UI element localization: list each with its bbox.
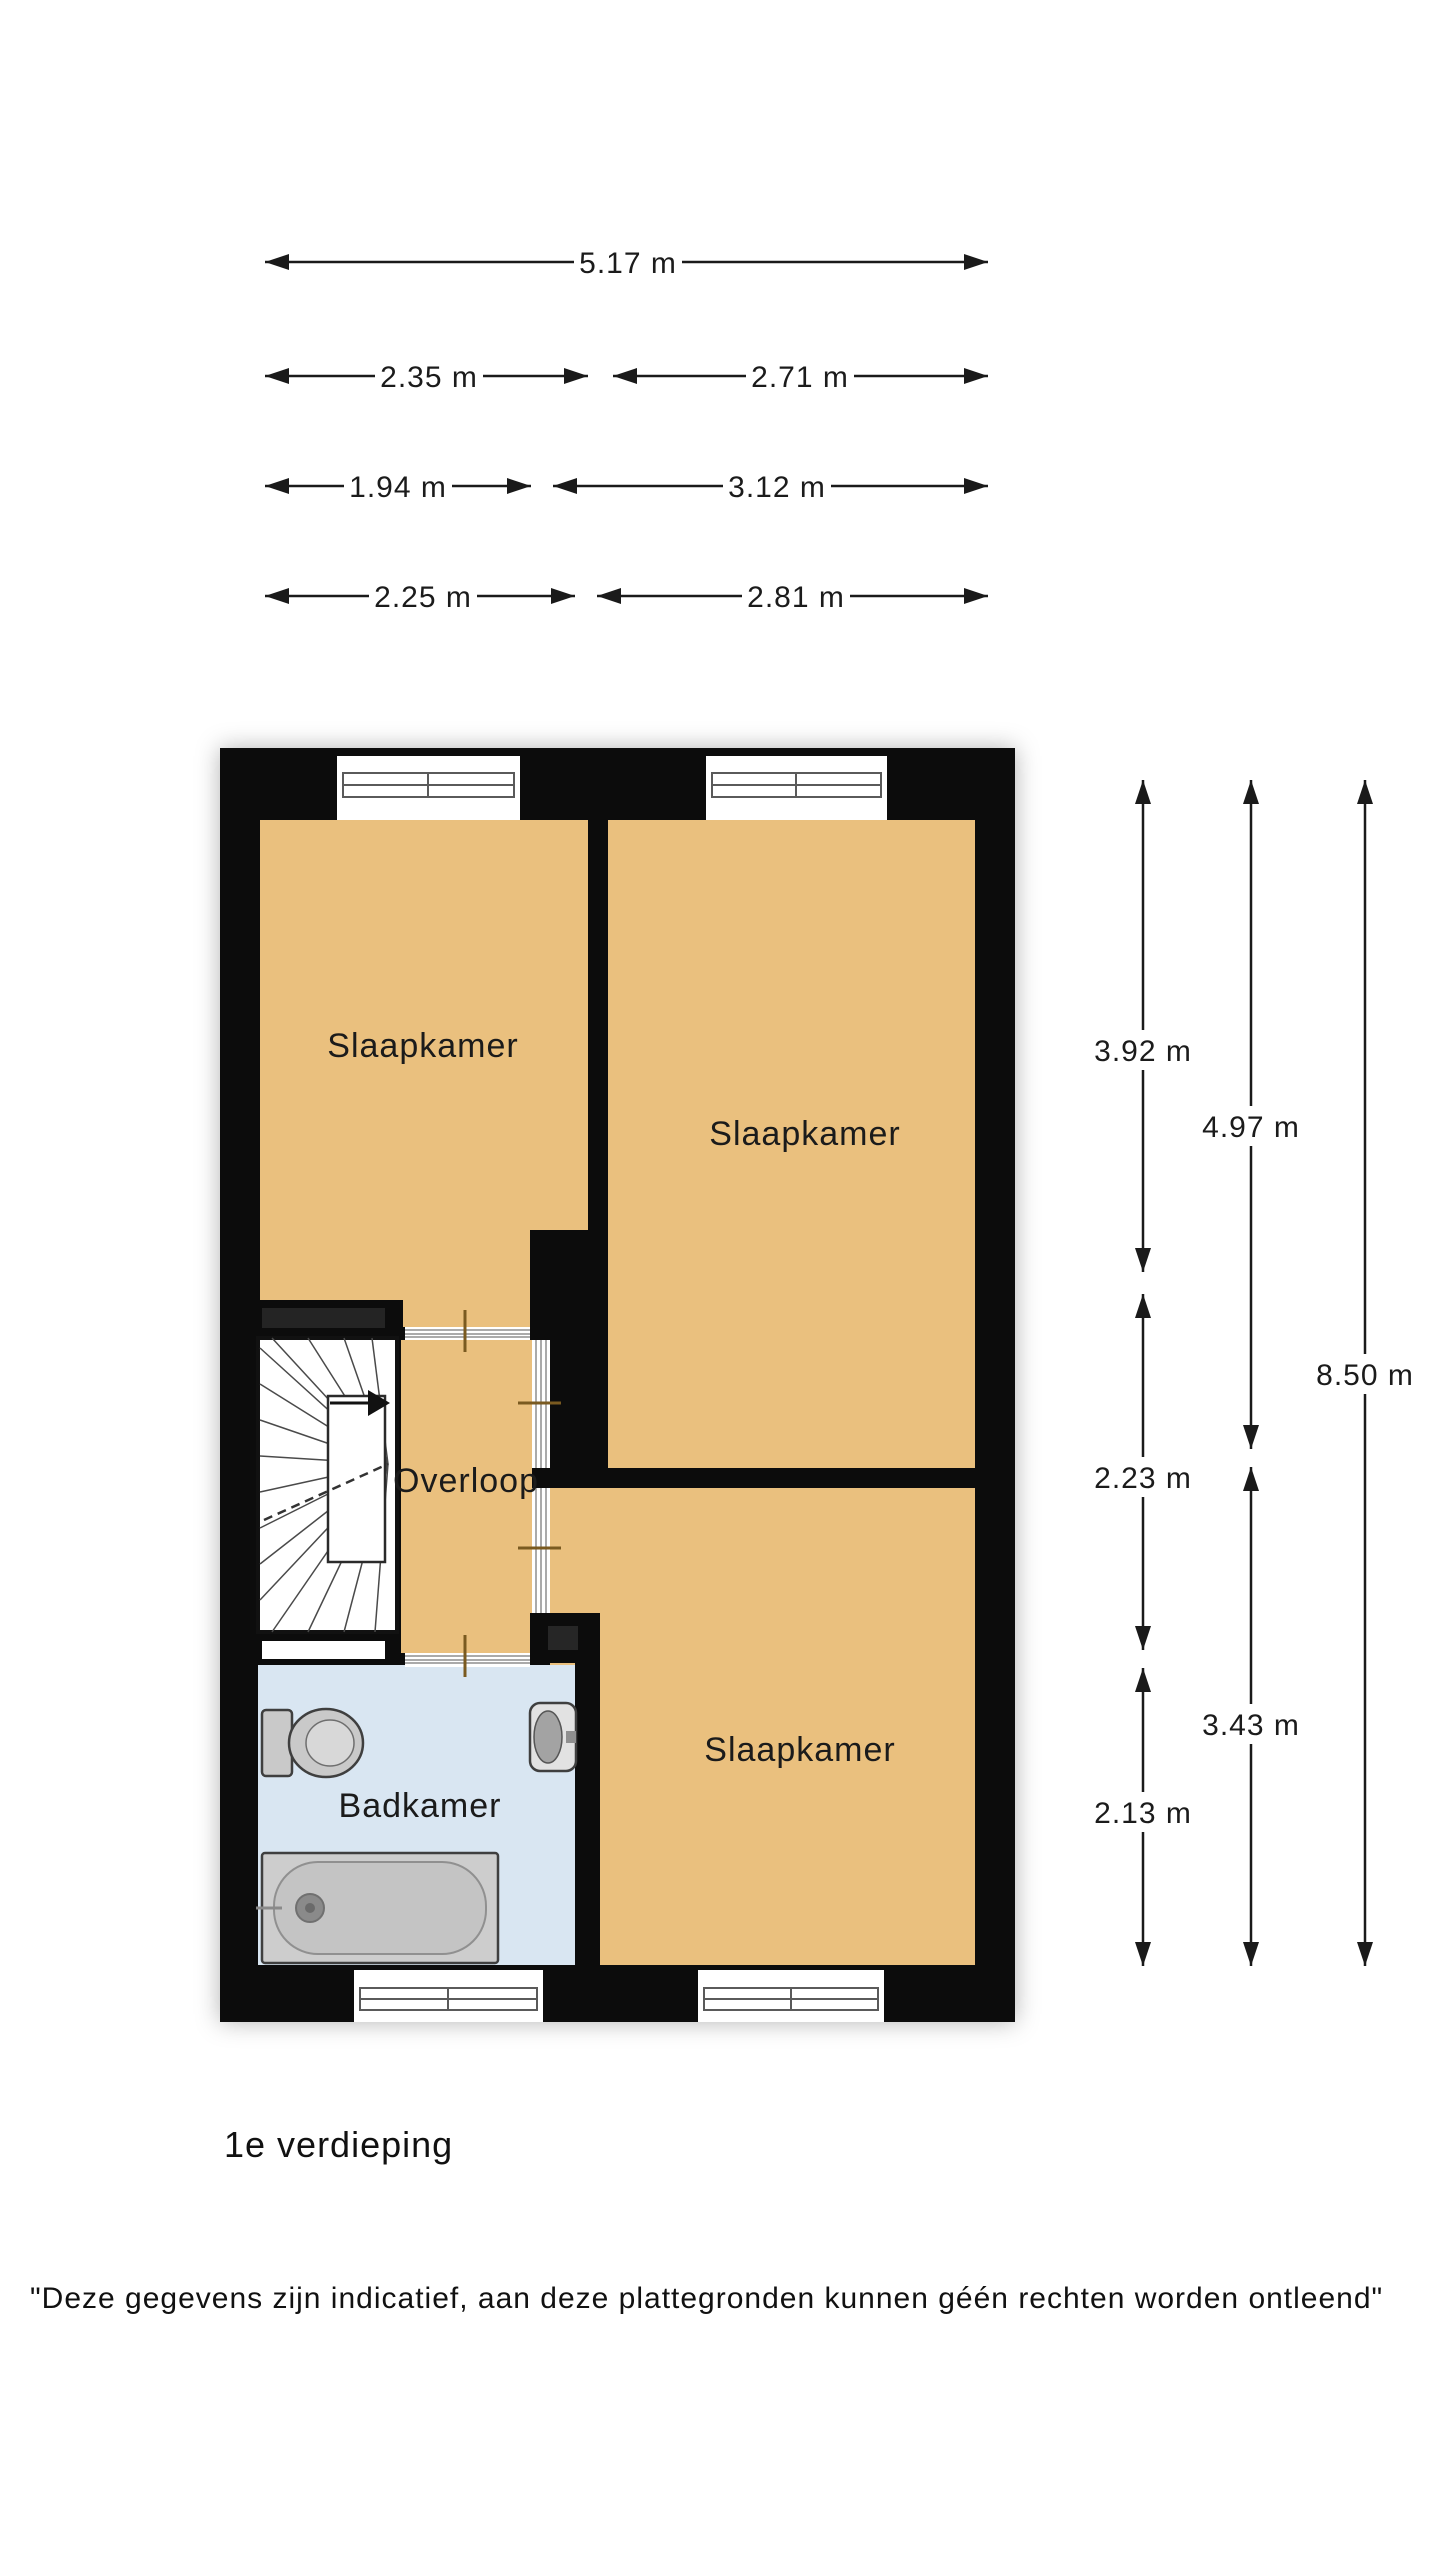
room-bedroom-top-left: [260, 820, 588, 1230]
dimension-label-h1-mid: 2.23 m: [1094, 1462, 1192, 1495]
floor-plan: Slaapkamer Slaapkamer Slaapkamer Overloo…: [220, 748, 1015, 2022]
room-bedroom-top-left-2: [260, 1230, 530, 1300]
dimension-label-total-width: 5.17 m: [579, 247, 677, 280]
dimension-label-w4-right: 2.81 m: [747, 581, 845, 614]
vertical-dimensions: 3.92 m 2.23 m 2.13 m 4.97 m 3.43 m 8.50 …: [1080, 740, 1420, 2020]
toilet-icon: [262, 1709, 363, 1777]
dimension-label-w2-right: 2.71 m: [751, 361, 849, 394]
horizontal-dimensions: 5.17 m 2.35 m 2.71 m 1.94 m 3.12 m 2.25 …: [0, 0, 1440, 680]
dimension-label-w2-left: 2.35 m: [380, 361, 478, 394]
room-bedroom-bottom: [550, 1488, 975, 1965]
stairs: [258, 1338, 397, 1632]
wall-niche-below-stairs: [262, 1641, 385, 1659]
room-label-bedroom-top-right: Slaapkamer: [709, 1115, 900, 1153]
stairs-inner-rect: [328, 1396, 385, 1562]
dimension-label-total-height: 8.50 m: [1316, 1359, 1414, 1392]
wall-bathroom-right: [575, 1663, 600, 1965]
bathtub-icon: [256, 1853, 498, 1963]
room-label-bathroom: Badkamer: [339, 1787, 502, 1825]
room-label-bedroom-bottom: Slaapkamer: [704, 1731, 895, 1769]
disclaimer-text: "Deze gegevens zijn indicatief, aan deze…: [30, 2282, 1383, 2316]
dimension-label-w3-right: 3.12 m: [728, 471, 826, 504]
wall-block-inset: [548, 1626, 578, 1650]
room-label-landing: Overloop: [393, 1462, 539, 1500]
dimension-label-w4-left: 2.25 m: [374, 581, 472, 614]
dimension-label-w3-left: 1.94 m: [349, 471, 447, 504]
floorplan-page: 5.17 m 2.35 m 2.71 m 1.94 m 3.12 m 2.25 …: [0, 0, 1440, 2560]
wall-niche-above-stairs: [262, 1308, 385, 1328]
dimension-label-h1-top: 3.92 m: [1094, 1035, 1192, 1068]
room-label-bedroom-top-left: Slaapkamer: [327, 1027, 518, 1065]
floor-title: 1e verdieping: [224, 2124, 453, 2166]
dimension-label-h2-top: 4.97 m: [1202, 1111, 1300, 1144]
sink-icon: [530, 1703, 576, 1771]
dimension-label-h1-bot: 2.13 m: [1094, 1797, 1192, 1830]
dimension-label-h2-bot: 3.43 m: [1202, 1709, 1300, 1742]
